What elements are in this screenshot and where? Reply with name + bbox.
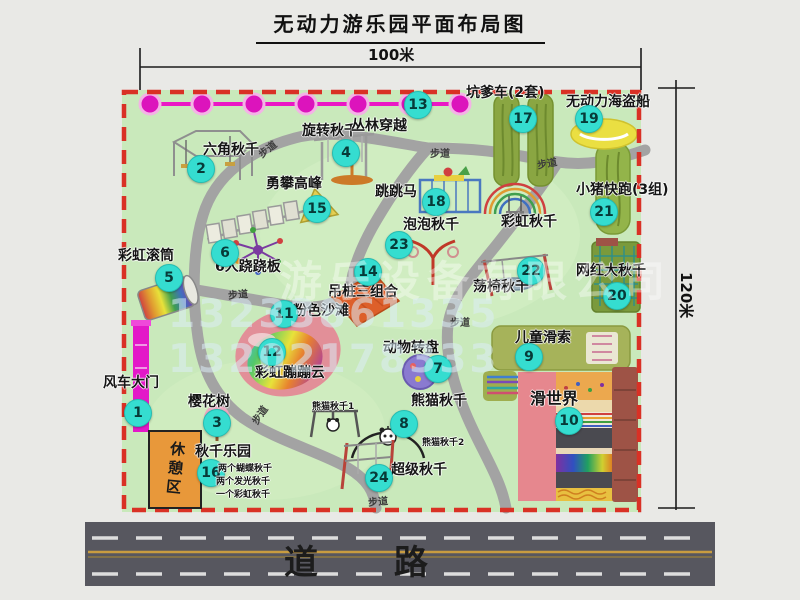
attraction-marker-rainbow-roller: 5 xyxy=(155,264,183,292)
attraction-sublabel-swing-park-1: 两个蝴蝶秋千 xyxy=(218,465,272,474)
attraction-sublabel-panda-swing-1: 熊猫秋千1 xyxy=(312,403,354,412)
attraction-label-chair-swing: 荡椅秋千 xyxy=(473,280,529,294)
walkway-label-4: 步道 xyxy=(227,285,248,302)
attraction-label-windmill-gate: 风车大门 xyxy=(103,376,159,390)
attraction-marker-jumping-horse: 18 xyxy=(422,188,450,216)
attraction-label-panda-swing: 熊猫秋千 xyxy=(411,394,467,408)
attraction-marker-windmill-gate: 1 xyxy=(124,399,152,427)
page-title: 无动力游乐园平面布局图 xyxy=(0,8,800,44)
attraction-label-cherry-tree: 樱花树 xyxy=(188,395,230,409)
attraction-label-kengdie-car: 坑爹车(2套) xyxy=(466,86,545,100)
attraction-marker-pirate-ship: 19 xyxy=(575,105,603,133)
attraction-label-hanging-piles: 吊桩三组合 xyxy=(328,285,398,299)
attraction-marker-bubble-swing: 23 xyxy=(385,231,413,259)
attraction-label-peak-climb: 勇攀高峰 xyxy=(266,177,322,191)
attraction-label-bubble-swing: 泡泡秋千 xyxy=(403,218,459,232)
attraction-marker-piggy-run: 21 xyxy=(590,198,618,226)
attraction-label-rainbow-roller: 彩虹滚筒 xyxy=(118,249,174,263)
attraction-label-super-swing: 超级秋千 xyxy=(391,463,447,477)
dimension-top-label: 100米 xyxy=(368,44,414,65)
dimension-right-label: 120米 xyxy=(676,272,697,318)
playground-map: 无动力游乐园平面布局图 100米 120米 休憩区 风车大门1六角秋千2樱花树3… xyxy=(0,0,800,600)
attraction-marker-big-swing: 20 xyxy=(603,282,631,310)
attraction-sublabel-swing-park-3: 一个彩虹秋千 xyxy=(216,491,270,500)
attraction-label-slide-world: 滑世界 xyxy=(530,391,578,407)
attraction-label-animal-turntable: 动物转盘 xyxy=(383,341,439,355)
attraction-marker-super-swing: 24 xyxy=(365,464,393,492)
attraction-marker-chair-swing: 22 xyxy=(517,257,545,285)
attraction-sublabel-swing-park-2: 两个发光秋千 xyxy=(216,478,270,487)
attraction-label-jungle-crossing: 丛林穿越 xyxy=(351,119,407,133)
attraction-marker-hex-swing: 2 xyxy=(187,155,215,183)
attraction-label-big-swing: 网红大秋千 xyxy=(576,264,646,278)
attraction-label-rainbow-cloud: 彩虹蹦蹦云 xyxy=(255,366,325,380)
attraction-marker-jungle-crossing: 13 xyxy=(404,91,432,119)
attraction-marker-kengdie-car: 17 xyxy=(509,105,537,133)
rest-area-label: 休憩区 xyxy=(162,440,189,499)
attraction-label-hex-swing: 六角秋千 xyxy=(203,143,259,157)
attraction-label-swing-park: 秋千乐园 xyxy=(195,445,251,459)
attraction-marker-panda-swing: 8 xyxy=(390,410,418,438)
attraction-label-piggy-run: 小猪快跑(3组) xyxy=(576,183,669,197)
attraction-label-rainbow-swing: 彩虹秋千 xyxy=(501,215,557,229)
attraction-marker-slide-world: 10 xyxy=(555,407,583,435)
attraction-label-pink-beach: 粉色沙滩 xyxy=(293,304,349,318)
attraction-marker-pink-beach: 11 xyxy=(270,300,298,328)
attraction-marker-kids-zipline: 9 xyxy=(515,343,543,371)
walkway-label-7: 步道 xyxy=(367,492,388,509)
walkway-label-5: 步道 xyxy=(450,314,470,329)
attraction-label-pirate-ship: 无动力海盗船 xyxy=(566,95,650,109)
rest-area: 休憩区 xyxy=(148,430,202,509)
attraction-marker-peak-climb: 15 xyxy=(303,195,331,223)
attraction-marker-rainbow-cloud: 12 xyxy=(258,338,286,366)
attraction-marker-animal-turntable: 7 xyxy=(424,355,452,383)
road-label: 道 路 xyxy=(284,535,460,584)
walkway-label-2: 步道 xyxy=(430,145,450,160)
attraction-label-jumping-horse: 跳跳马 xyxy=(375,185,417,199)
attraction-marker-cherry-tree: 3 xyxy=(203,409,231,437)
attraction-label-rotating-swing: 旋转秋千 xyxy=(302,124,358,138)
attraction-sublabel-panda-swing-2: 熊猫秋千2 xyxy=(422,439,464,448)
attraction-marker-six-seesaw: 6 xyxy=(211,239,239,267)
attraction-marker-hanging-piles: 14 xyxy=(354,258,382,286)
attraction-marker-rotating-swing: 4 xyxy=(332,139,360,167)
